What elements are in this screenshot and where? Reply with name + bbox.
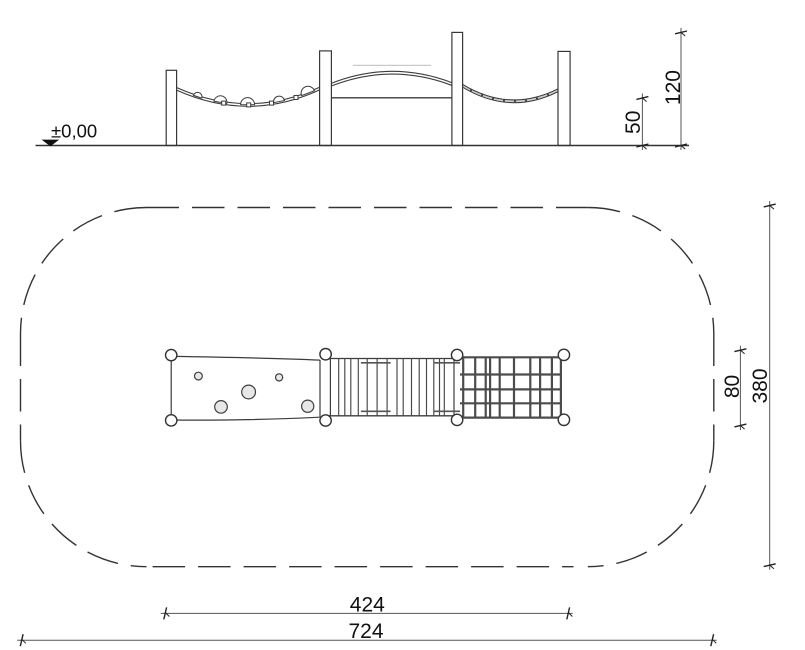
svg-text:724: 724	[348, 620, 383, 643]
svg-text:80: 80	[721, 375, 744, 398]
svg-text:±0,00: ±0,00	[51, 121, 97, 142]
svg-text:50: 50	[622, 111, 645, 134]
svg-text:120: 120	[662, 70, 685, 105]
svg-text:380: 380	[749, 368, 772, 403]
svg-text:424: 424	[350, 593, 385, 616]
